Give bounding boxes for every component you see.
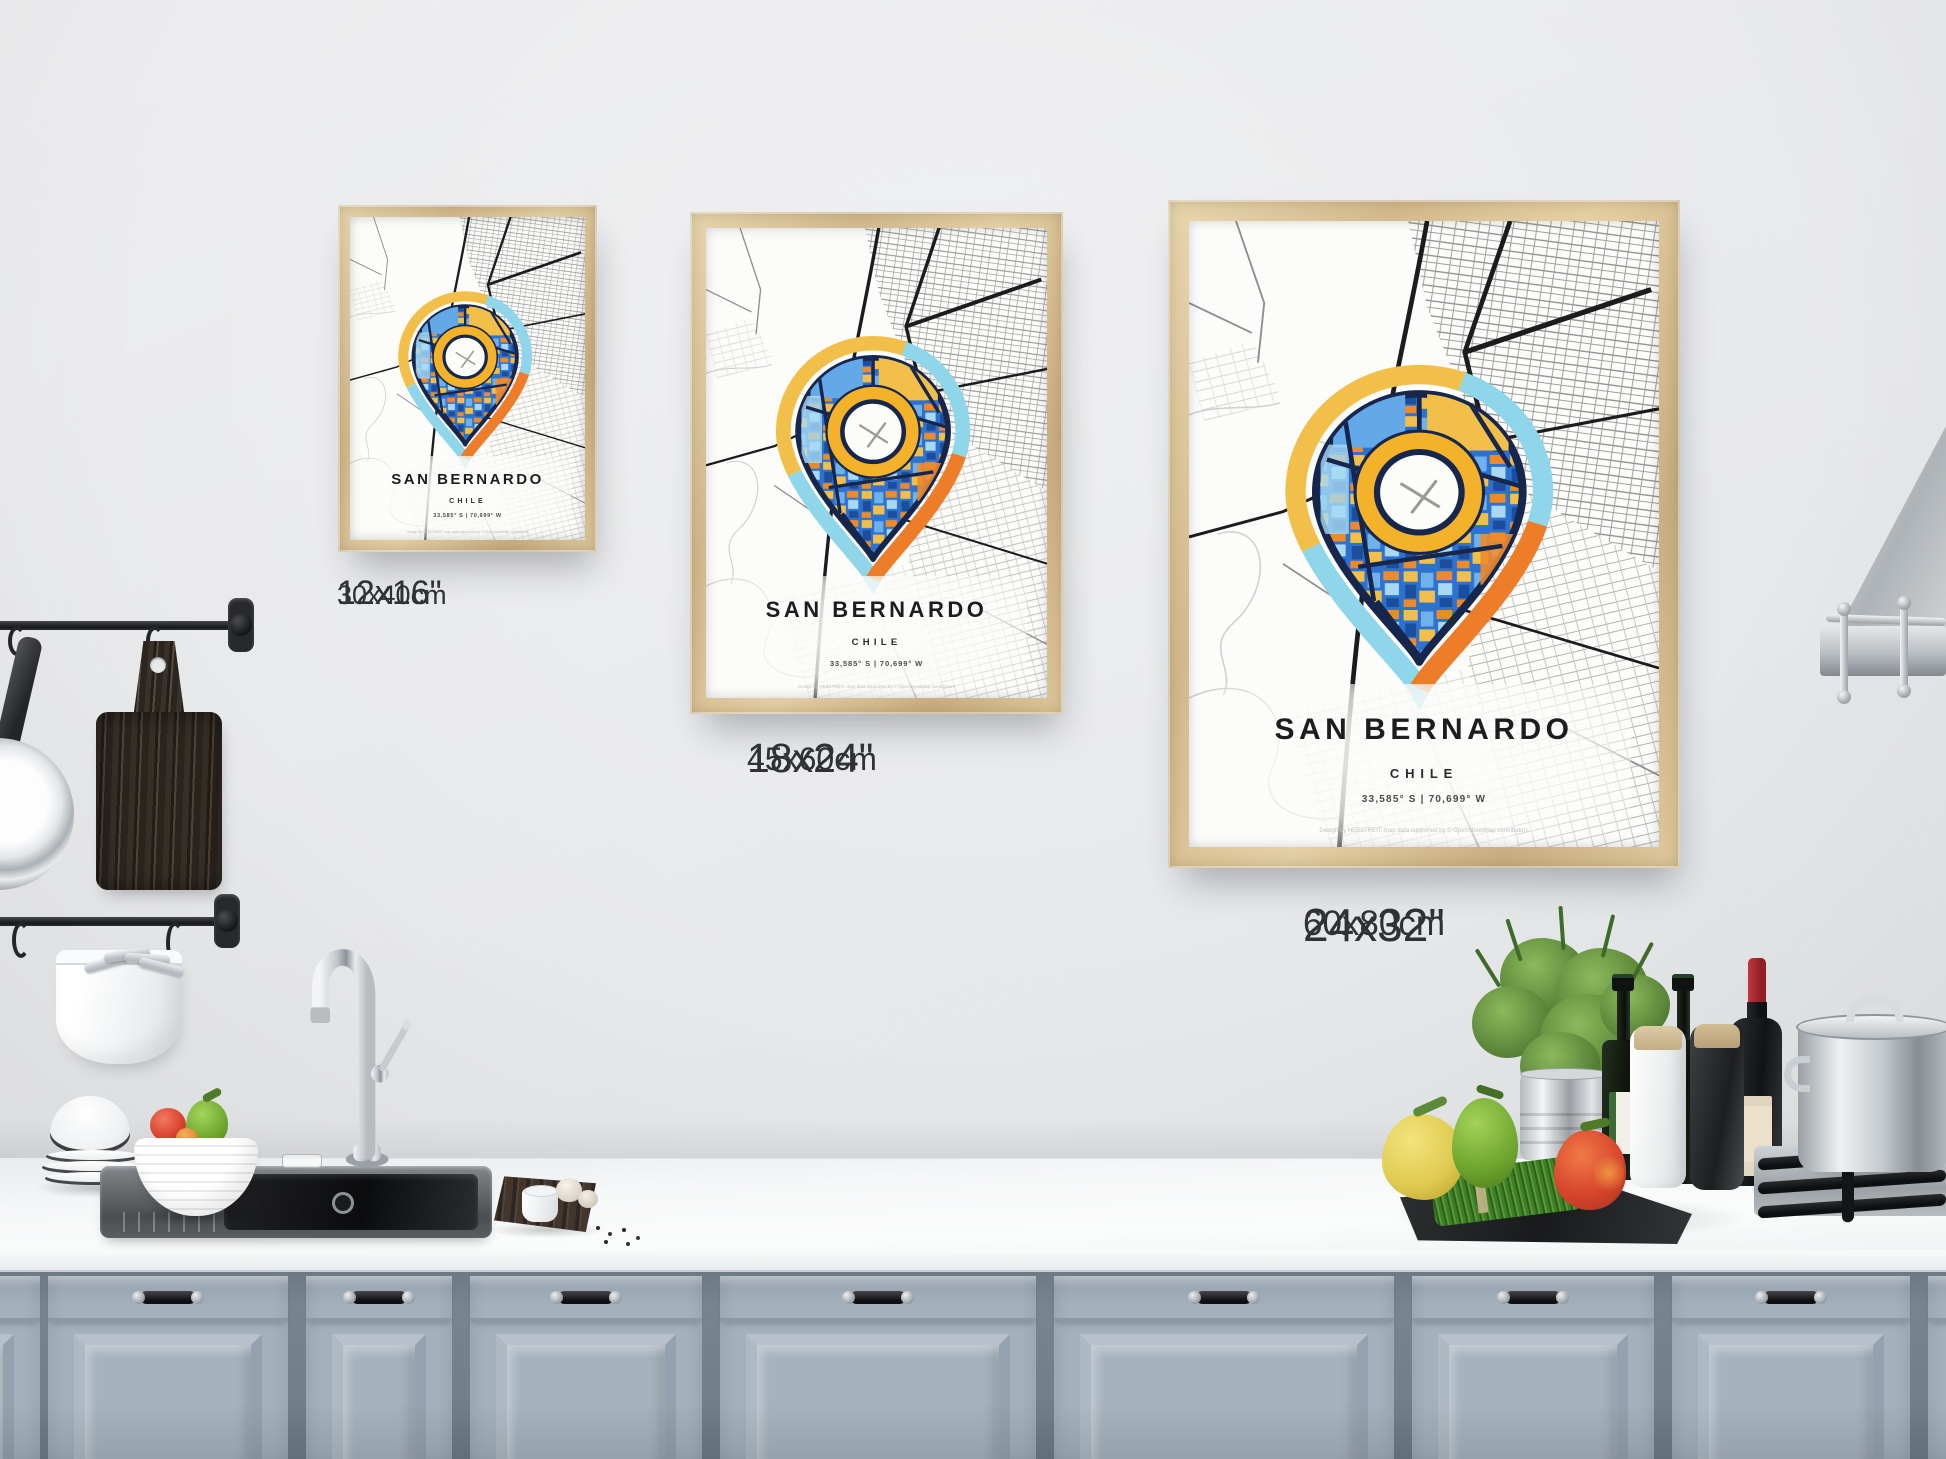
cabinet-door [1412, 1276, 1654, 1459]
kitchen-mockup-scene: SAN BERNARDO CHILE 33,585° S | 70,699° W… [0, 0, 1946, 1459]
yellow-bell-pepper [1382, 1114, 1464, 1200]
pepper-grinder [1690, 1024, 1744, 1190]
cabinet-drawer [720, 1276, 1036, 1322]
cabinet-door [306, 1276, 452, 1459]
cabinet-panel [1080, 1334, 1368, 1459]
oil-bottle-neck [1617, 982, 1630, 1044]
cabinet-door [720, 1276, 1036, 1459]
poster-country: CHILE [706, 637, 1047, 648]
cabinet-drawer [48, 1276, 288, 1322]
poster-coordinates: 33,585° S | 70,699° W [706, 659, 1047, 668]
poster-credit: Design by HEBSTREIT, map data supported … [1189, 828, 1659, 834]
cabinet-panel [0, 1334, 14, 1459]
oil-bottle-cap [1672, 974, 1694, 991]
cabinet-drawer [470, 1276, 702, 1322]
wall-rail-upper [0, 621, 254, 630]
drawer-handle [558, 1291, 614, 1304]
lower-cabinets [0, 1272, 1946, 1459]
wall-rail-bracket [214, 894, 240, 948]
rail-hook [12, 922, 30, 958]
wall-rail-bracket [228, 598, 254, 652]
cutting-board [96, 712, 222, 890]
poster-city-title: SAN BERNARDO [350, 471, 585, 488]
size-cm: 30x40cm [337, 580, 447, 611]
stainless-pot [1798, 1020, 1946, 1172]
small-cup [522, 1188, 558, 1222]
drawer-handle [1505, 1291, 1561, 1304]
poster-text-block: SAN BERNARDO CHILE 33,585° S | 70,699° W… [706, 228, 1047, 698]
range-hood-rail-post [1900, 604, 1908, 690]
poster-city-title: SAN BERNARDO [1189, 713, 1659, 747]
poster-paper: SAN BERNARDO CHILE 33,585° S | 70,699° W… [1189, 221, 1659, 847]
cabinet-drawer [1054, 1276, 1394, 1322]
poster-credit: Design by HEBSTREIT, map data supported … [706, 684, 1047, 689]
drawer-handle [1763, 1291, 1819, 1304]
poster-city-title: SAN BERNARDO [706, 597, 1047, 623]
cabinet-panel [1438, 1334, 1628, 1459]
poster-credit: Design by HEBSTREIT, map data supported … [350, 530, 585, 534]
cabinet-drawer [306, 1276, 452, 1322]
poster-paper: SAN BERNARDO CHILE 33,585° S | 70,699° W… [706, 228, 1047, 698]
drawer-handle [351, 1291, 407, 1304]
salt-grinder [1630, 1026, 1686, 1188]
green-bell-pepper [1452, 1098, 1518, 1188]
cabinet-panel [1698, 1334, 1884, 1459]
poster-text-block: SAN BERNARDO CHILE 33,585° S | 70,699° W… [1189, 221, 1659, 847]
drawer-handle [140, 1291, 196, 1304]
poster-paper: SAN BERNARDO CHILE 33,585° S | 70,699° W… [350, 217, 585, 540]
peppercorns [596, 1226, 600, 1230]
cabinet-panel [746, 1334, 1010, 1459]
cabinet-drawer [1672, 1276, 1910, 1322]
cabinet-door [0, 1276, 40, 1459]
cabinet-drawer [0, 1276, 40, 1322]
drawer-handle [850, 1291, 906, 1304]
poster-country: CHILE [1189, 766, 1659, 781]
poster-12x16: SAN BERNARDO CHILE 33,585° S | 70,699° W… [338, 205, 597, 552]
poster-24x32: SAN BERNARDO CHILE 33,585° S | 70,699° W… [1168, 200, 1680, 868]
cabinet-panel [332, 1334, 426, 1459]
wall-rail-lower [0, 917, 240, 926]
range-hood-rail-post [1840, 610, 1848, 696]
cabinet-panel [74, 1334, 262, 1459]
cabinet-door [1928, 1276, 1946, 1459]
range-hood-body [1820, 626, 1946, 676]
cabinet-door [1054, 1276, 1394, 1459]
cabinet-door [1672, 1276, 1910, 1459]
oil-bottle-cap [1612, 974, 1634, 991]
cabinet-door [470, 1276, 702, 1459]
size-cm: 45x60cm [747, 741, 877, 778]
countertop-edge [0, 1250, 1946, 1272]
size-cm: 60x80cm [1303, 904, 1445, 944]
poster-country: CHILE [350, 498, 585, 505]
red-bell-pepper [1554, 1130, 1626, 1210]
poster-coordinates: 33,585° S | 70,699° W [350, 513, 585, 519]
cabinet-drawer [1928, 1276, 1946, 1322]
drawer-handle [1196, 1291, 1252, 1304]
poster-text-block: SAN BERNARDO CHILE 33,585° S | 70,699° W… [350, 217, 585, 540]
cabinet-door [48, 1276, 288, 1459]
kitchen-faucet [305, 912, 435, 1170]
poster-coordinates: 33,585° S | 70,699° W [1189, 794, 1659, 805]
cutting-board-hole [150, 657, 166, 673]
garlic [578, 1190, 598, 1208]
cabinet-panel [496, 1334, 676, 1459]
poster-18x24: SAN BERNARDO CHILE 33,585° S | 70,699° W… [690, 212, 1063, 714]
sink-drain [332, 1192, 354, 1214]
cabinet-drawer [1412, 1276, 1654, 1322]
